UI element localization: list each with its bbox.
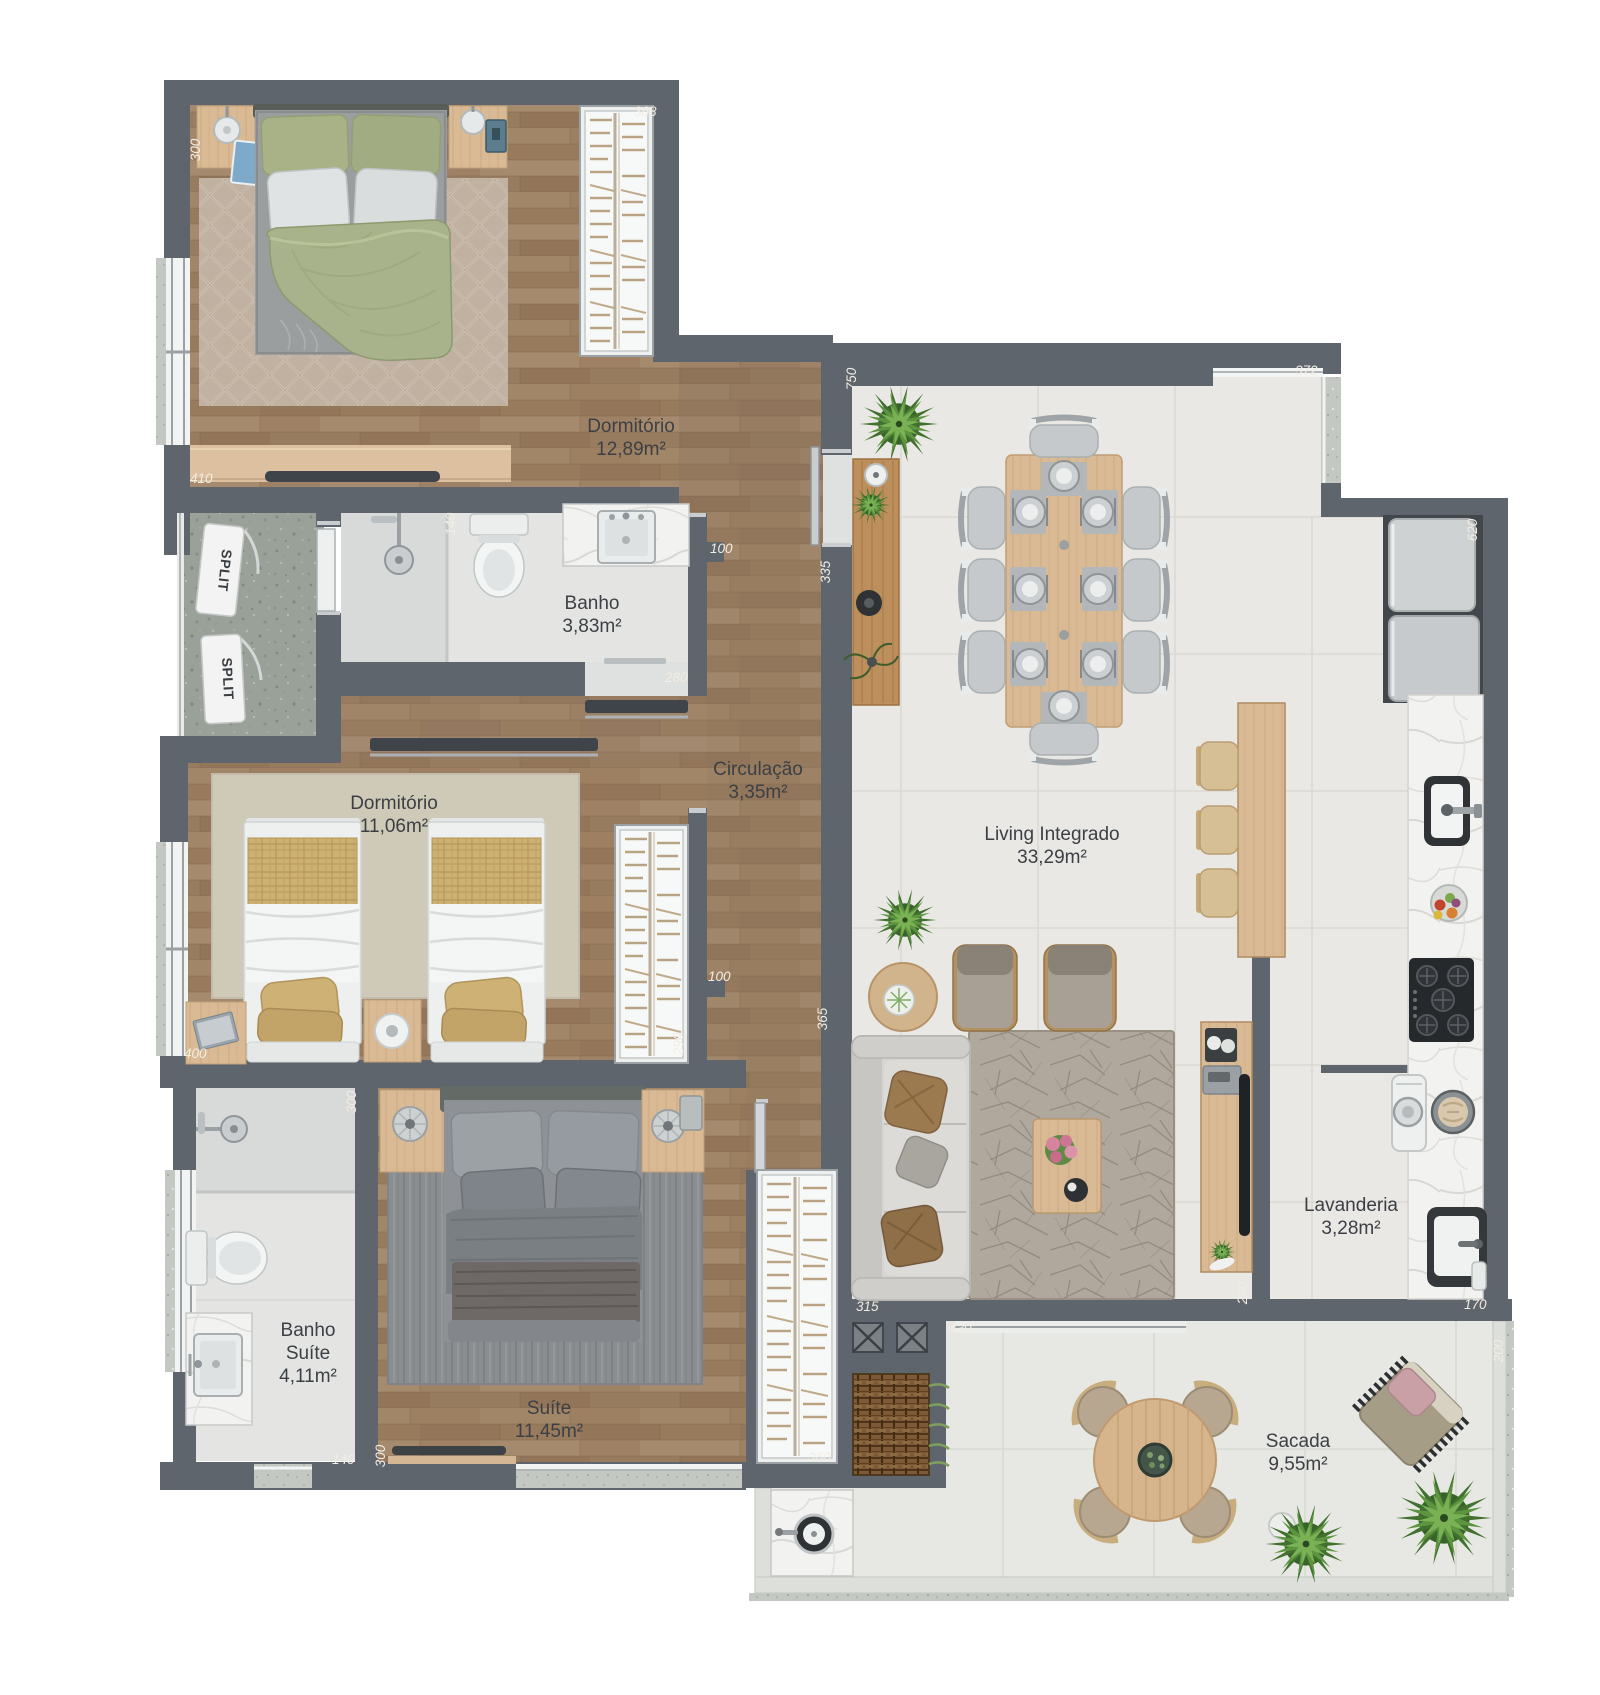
svg-text:100: 100 — [710, 541, 733, 556]
svg-text:100: 100 — [708, 969, 731, 984]
svg-text:3,83m²: 3,83m² — [562, 616, 621, 637]
svg-text:620: 620 — [1465, 518, 1480, 541]
svg-text:368: 368 — [634, 104, 657, 119]
svg-text:3,28m²: 3,28m² — [1321, 1218, 1380, 1239]
svg-text:Banho: Banho — [565, 593, 620, 614]
svg-text:Suíte: Suíte — [527, 1398, 571, 1419]
svg-text:Lavanderia: Lavanderia — [1304, 1195, 1398, 1216]
svg-text:11,45m²: 11,45m² — [515, 1421, 583, 1442]
svg-text:11,06m²: 11,06m² — [360, 816, 428, 837]
svg-text:12,89m²: 12,89m² — [596, 439, 666, 460]
svg-text:430: 430 — [949, 1321, 972, 1336]
svg-text:315: 315 — [856, 1299, 879, 1314]
svg-text:4,11m²: 4,11m² — [279, 1366, 337, 1387]
svg-text:300: 300 — [373, 1444, 388, 1467]
svg-text:SPLIT: SPLIT — [219, 657, 237, 700]
svg-text:372: 372 — [1295, 363, 1318, 378]
svg-text:Suíte: Suíte — [286, 1343, 330, 1364]
svg-text:300: 300 — [188, 138, 203, 161]
svg-text:Dormitório: Dormitório — [350, 793, 438, 814]
svg-text:33,29m²: 33,29m² — [1017, 847, 1087, 868]
svg-text:365: 365 — [815, 1007, 830, 1030]
svg-text:300: 300 — [344, 1090, 359, 1113]
svg-text:750: 750 — [844, 367, 859, 390]
svg-text:400: 400 — [184, 1046, 207, 1061]
svg-text:Sacada: Sacada — [1266, 1431, 1331, 1452]
svg-text:170: 170 — [1464, 1297, 1487, 1312]
svg-text:Dormitório: Dormitório — [587, 416, 675, 437]
svg-text:Circulação: Circulação — [713, 759, 803, 780]
svg-text:335: 335 — [818, 560, 833, 583]
svg-text:200: 200 — [1491, 1339, 1506, 1363]
svg-text:280: 280 — [1235, 1281, 1250, 1305]
svg-text:140: 140 — [332, 1452, 355, 1467]
svg-text:3,35m²: 3,35m² — [728, 782, 787, 803]
svg-text:290: 290 — [671, 1032, 686, 1056]
svg-text:360: 360 — [808, 1450, 831, 1465]
svg-text:9,55m²: 9,55m² — [1268, 1454, 1327, 1475]
svg-text:280: 280 — [664, 670, 688, 685]
svg-text:410: 410 — [190, 471, 213, 486]
svg-text:Banho: Banho — [281, 1320, 336, 1341]
svg-text:140: 140 — [443, 512, 458, 535]
svg-text:Living Integrado: Living Integrado — [984, 824, 1119, 845]
